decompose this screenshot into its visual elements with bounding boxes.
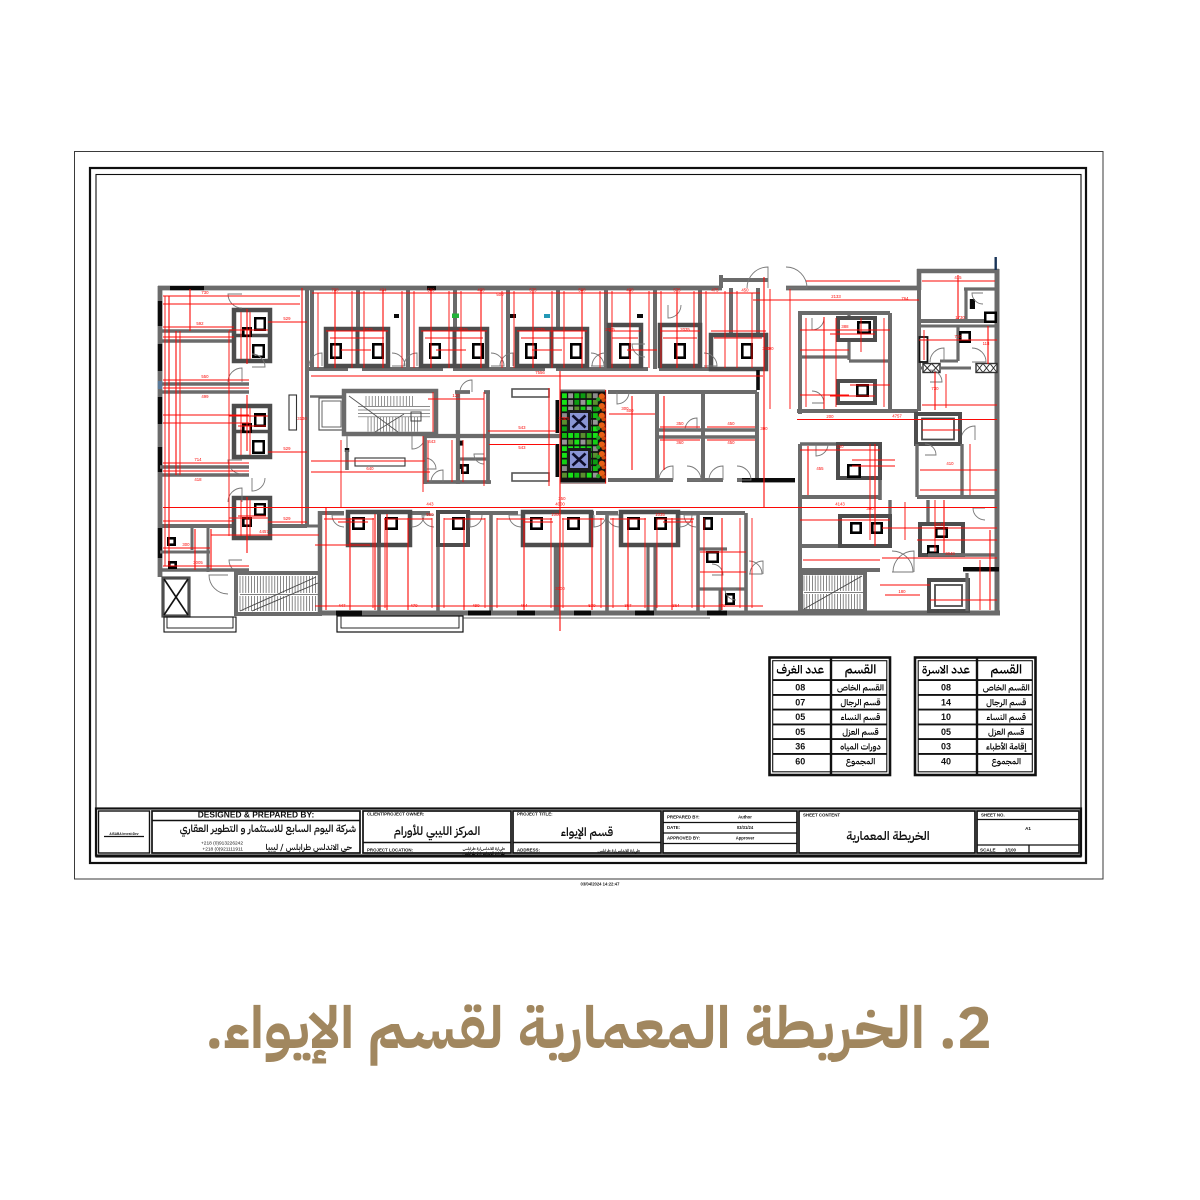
svg-text:180: 180 bbox=[898, 589, 906, 594]
svg-text:450: 450 bbox=[727, 421, 735, 426]
svg-text:03/31/24: 03/31/24 bbox=[737, 825, 754, 830]
svg-text:300: 300 bbox=[182, 542, 190, 547]
svg-text:3000: 3000 bbox=[555, 586, 565, 591]
svg-text:455: 455 bbox=[816, 466, 824, 471]
svg-text:543: 543 bbox=[518, 425, 526, 430]
svg-text:1035: 1035 bbox=[655, 512, 665, 517]
svg-text:764: 764 bbox=[901, 296, 909, 301]
svg-text:550: 550 bbox=[201, 374, 209, 379]
svg-text:120: 120 bbox=[452, 393, 460, 398]
svg-text:529: 529 bbox=[283, 516, 291, 521]
svg-text:4143: 4143 bbox=[835, 502, 845, 507]
svg-text:388: 388 bbox=[841, 324, 849, 329]
svg-text:350: 350 bbox=[558, 496, 566, 501]
svg-text:ADDRESS:: ADDRESS: bbox=[517, 848, 540, 853]
svg-text:2035: 2035 bbox=[680, 327, 690, 332]
svg-text:7556: 7556 bbox=[535, 370, 545, 375]
svg-text:+218 (0)913226242: +218 (0)913226242 bbox=[201, 841, 243, 847]
svg-text:05: 05 bbox=[795, 727, 805, 737]
svg-text:Author: Author bbox=[738, 815, 752, 820]
svg-text:410: 410 bbox=[946, 461, 954, 466]
svg-text:08: 08 bbox=[795, 683, 805, 693]
svg-text:SHEET NO.: SHEET NO. bbox=[981, 813, 1005, 818]
svg-text:14: 14 bbox=[941, 697, 951, 707]
svg-text:710: 710 bbox=[954, 334, 962, 339]
svg-text:360: 360 bbox=[676, 440, 684, 445]
svg-text:3130: 3130 bbox=[297, 416, 307, 421]
svg-text:1/100: 1/100 bbox=[1005, 848, 1017, 853]
svg-text:PREPARED BY:: PREPARED BY: bbox=[667, 815, 700, 820]
svg-text:SHEET CONTENT: SHEET CONTENT bbox=[803, 813, 840, 818]
svg-text:475: 475 bbox=[711, 288, 719, 293]
svg-text:350: 350 bbox=[676, 421, 684, 426]
svg-text:200: 200 bbox=[826, 414, 834, 419]
svg-text:AlSABA Invest•Dev: AlSABA Invest•Dev bbox=[109, 832, 138, 836]
svg-text:450: 450 bbox=[741, 288, 749, 293]
svg-text:529: 529 bbox=[283, 446, 291, 451]
svg-text:730: 730 bbox=[201, 290, 209, 295]
svg-text:10: 10 bbox=[941, 712, 951, 722]
svg-text:592: 592 bbox=[196, 321, 204, 326]
svg-text:SCALE: SCALE bbox=[980, 848, 996, 853]
svg-text:590: 590 bbox=[426, 512, 434, 517]
svg-text:CLIENT/PROJECT OWNER:: CLIENT/PROJECT OWNER: bbox=[367, 812, 425, 817]
svg-text:A1: A1 bbox=[1025, 826, 1031, 831]
svg-text:03/04/2024 14:22:47: 03/04/2024 14:22:47 bbox=[581, 882, 621, 887]
svg-text:118: 118 bbox=[983, 341, 990, 346]
svg-text:03: 03 bbox=[941, 742, 951, 752]
svg-text:05: 05 bbox=[941, 727, 951, 737]
svg-text:450: 450 bbox=[727, 440, 735, 445]
svg-text:443: 443 bbox=[426, 502, 434, 507]
svg-text:4000: 4000 bbox=[555, 502, 565, 507]
svg-text:730: 730 bbox=[931, 386, 939, 391]
svg-text:1000: 1000 bbox=[551, 512, 561, 517]
svg-text:443: 443 bbox=[428, 439, 436, 444]
svg-text:450: 450 bbox=[836, 444, 844, 449]
svg-text:PROJECT LOCATION:: PROJECT LOCATION: bbox=[367, 848, 414, 853]
svg-text:418: 418 bbox=[194, 477, 202, 482]
svg-text:2035: 2035 bbox=[458, 327, 468, 332]
svg-text:05: 05 bbox=[795, 712, 805, 722]
svg-text:2035: 2035 bbox=[605, 327, 615, 332]
svg-text:2133: 2133 bbox=[831, 294, 841, 299]
svg-text:+218 (0)921111911: +218 (0)921111911 bbox=[202, 847, 243, 853]
svg-text:2035: 2035 bbox=[363, 327, 373, 332]
svg-text:529: 529 bbox=[283, 316, 291, 321]
svg-text:714: 714 bbox=[194, 457, 202, 462]
svg-text:300: 300 bbox=[621, 406, 629, 411]
svg-text:640: 640 bbox=[366, 466, 374, 471]
svg-text:Approver: Approver bbox=[736, 836, 755, 841]
svg-text:07: 07 bbox=[795, 697, 805, 707]
svg-text:DESIGNED & PREPARED BY:: DESIGNED & PREPARED BY: bbox=[198, 810, 315, 820]
svg-text:60: 60 bbox=[795, 756, 805, 766]
svg-text:4457: 4457 bbox=[259, 529, 269, 534]
svg-text:2035: 2035 bbox=[535, 327, 545, 332]
svg-text:543: 543 bbox=[518, 445, 526, 450]
svg-text:40: 40 bbox=[941, 756, 951, 766]
svg-text:1730: 1730 bbox=[955, 315, 965, 320]
svg-text:PROJECT TITLE:: PROJECT TITLE: bbox=[517, 812, 553, 817]
svg-text:3040: 3040 bbox=[935, 522, 945, 527]
svg-text:4757: 4757 bbox=[892, 414, 902, 419]
svg-text:500: 500 bbox=[496, 292, 504, 297]
svg-text:08: 08 bbox=[941, 683, 951, 693]
svg-text:DATE:: DATE: bbox=[667, 825, 681, 830]
svg-text:499: 499 bbox=[201, 394, 209, 399]
svg-text:300: 300 bbox=[760, 426, 768, 431]
svg-text:36: 36 bbox=[795, 742, 805, 752]
svg-text:APPROVED BY:: APPROVED BY: bbox=[667, 836, 701, 841]
svg-text:3040: 3040 bbox=[945, 551, 955, 556]
svg-text:375: 375 bbox=[562, 416, 570, 421]
